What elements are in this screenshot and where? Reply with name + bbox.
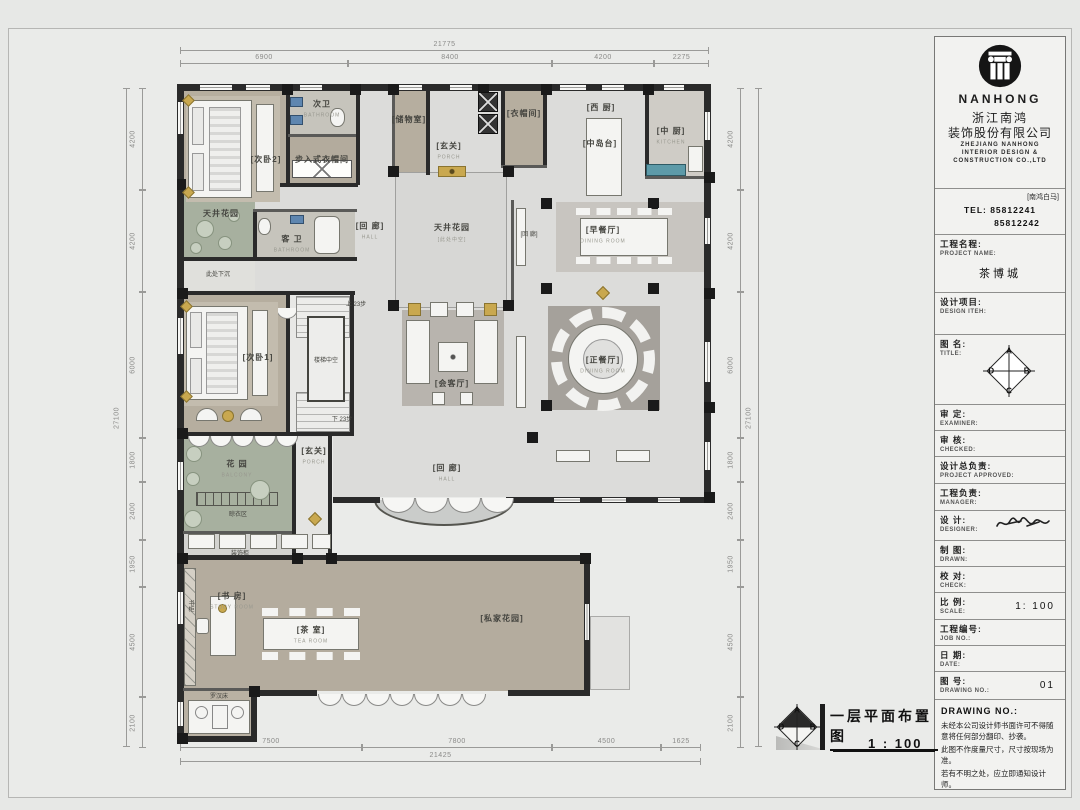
dimension-1950: 1950 bbox=[740, 540, 741, 587]
e-shape: EXAMINER: bbox=[940, 421, 1060, 427]
w-shape bbox=[253, 209, 257, 260]
winh-shape bbox=[398, 85, 422, 90]
w-shape bbox=[183, 257, 257, 261]
blue-shape bbox=[290, 215, 304, 224]
cn-shape: 天井花园 bbox=[434, 223, 470, 232]
gold-shape bbox=[408, 303, 421, 316]
cn-shape: [茶 室] bbox=[297, 626, 326, 635]
col-shape bbox=[541, 400, 552, 411]
fw-shape bbox=[196, 618, 209, 634]
dimension-1800: 1800 bbox=[740, 438, 741, 482]
w-shape bbox=[251, 690, 257, 742]
titleblock-value: 1: 100 bbox=[1015, 601, 1055, 612]
col-shape bbox=[388, 84, 399, 95]
col-shape bbox=[704, 172, 715, 183]
span: 1800 bbox=[728, 451, 735, 469]
span: 7800 bbox=[448, 738, 466, 745]
dimension-2400: 2400 bbox=[740, 482, 741, 540]
col-shape bbox=[704, 288, 715, 299]
blue-shape bbox=[290, 115, 303, 125]
span: 27100 bbox=[114, 407, 121, 429]
titleblock-row-12: 日 期:DATE: bbox=[935, 646, 1065, 672]
winh-shape bbox=[300, 85, 322, 90]
titleblock-row-11: 工程编号:JOB NO.: bbox=[935, 620, 1065, 646]
dimension-2400: 2400 bbox=[142, 482, 143, 540]
floor-plan: [次卧2]次卫BATHROOM步入式衣帽间[储物室][玄关]PORCH[衣帽间]… bbox=[0, 0, 940, 810]
dimension-2275: 2275 bbox=[654, 63, 709, 64]
cn-shape: [中 厨] bbox=[657, 127, 686, 136]
company-en-line3: CONSTRUCTION CO.,LTD bbox=[935, 158, 1065, 164]
room-label-private-garden: [私家花园] bbox=[480, 608, 523, 626]
cn-shape: 晾衣区 bbox=[229, 512, 247, 518]
bed-bedroom1 bbox=[186, 306, 248, 400]
span: 6000 bbox=[130, 356, 137, 374]
en-shape: HALL bbox=[433, 477, 462, 483]
room-label-hall-bottom: [回 廊]HALL bbox=[433, 458, 462, 483]
span: 2100 bbox=[728, 714, 735, 732]
c-shape: 日 期: bbox=[940, 649, 1060, 661]
compass-letter-B: B bbox=[810, 723, 816, 732]
wt-shape bbox=[511, 200, 514, 305]
col-shape bbox=[177, 428, 188, 439]
dimension-2100: 2100 bbox=[740, 697, 741, 748]
compass-letter-C: C bbox=[794, 740, 800, 749]
span: 21775 bbox=[434, 41, 456, 48]
dimension-27100: 27100 bbox=[758, 88, 759, 747]
room-label-bedroom1: [次卧1] bbox=[243, 347, 274, 365]
winh-shape bbox=[602, 498, 626, 502]
wt-shape bbox=[253, 209, 357, 212]
cn-shape: 步入式衣帽间 bbox=[295, 155, 349, 164]
col-shape bbox=[326, 553, 337, 564]
titleblock-value: 茶博城 bbox=[935, 265, 1065, 281]
room-label-sunken: 此处下沉 bbox=[206, 263, 230, 281]
col-shape bbox=[350, 84, 361, 95]
room-label-hall-left: [回 廊]HALL bbox=[356, 216, 385, 241]
fan-shape bbox=[318, 694, 342, 706]
span: 21425 bbox=[430, 752, 452, 759]
room-label-bath2: 次卫BATHROOM bbox=[304, 94, 341, 119]
fw-shape bbox=[516, 336, 526, 408]
room-label-stair-down: 下 23步 bbox=[332, 408, 352, 426]
room-label-stair-void: 楼梯中空 bbox=[314, 349, 338, 367]
plant-shape bbox=[196, 220, 214, 238]
titleblock-row-6: 工程负责:MANAGER: bbox=[935, 484, 1065, 511]
cn-shape: [私家花园] bbox=[480, 614, 523, 623]
dimension-27100: 27100 bbox=[126, 88, 127, 747]
gold-shape bbox=[222, 410, 234, 422]
w-shape bbox=[183, 291, 355, 295]
e-shape: DESIGN ITEH: bbox=[940, 309, 1060, 315]
e-shape: CHECKED: bbox=[940, 447, 1060, 453]
titleblock-value: 01 bbox=[1040, 680, 1055, 691]
room-label-cloakroom: [衣帽间] bbox=[507, 103, 541, 121]
pl-shape bbox=[192, 153, 204, 191]
compass-letter-D: D bbox=[988, 367, 994, 376]
cn-shape: 此处下沉 bbox=[206, 272, 230, 278]
title-block-header: NANHONG 浙江南鸿 装饰股份有限公司 ZHEJIANG NANHONG I… bbox=[935, 37, 1065, 189]
room-label-decor-cabinet: 装饰柜 bbox=[231, 542, 249, 560]
gold-shape bbox=[484, 303, 497, 316]
cn-shape: 花 园 bbox=[226, 460, 247, 469]
w-shape bbox=[183, 555, 333, 560]
winv-shape bbox=[705, 112, 710, 140]
tel-line-1: TEL: 85812241 bbox=[935, 205, 1065, 215]
w-shape bbox=[255, 690, 317, 696]
span: 2400 bbox=[130, 502, 137, 520]
en-shape: HALL bbox=[356, 235, 385, 241]
titleblock-row-5: 设计总负责:PROJECT APPROVED: bbox=[935, 457, 1065, 484]
fl-shape bbox=[333, 437, 705, 497]
cn-shape: [书 房] bbox=[218, 592, 247, 601]
fan-shape bbox=[462, 694, 486, 706]
winv-shape bbox=[178, 318, 183, 354]
winv-shape bbox=[705, 442, 710, 470]
dimension-4200: 4200 bbox=[740, 88, 741, 190]
title-block-rows: 工程名程:PROJECT NAME:茶博城设计项目:DESIGN ITEH:图 … bbox=[935, 235, 1065, 700]
circle bbox=[1006, 56, 1012, 62]
winh-shape bbox=[658, 498, 680, 502]
note-line: 未经本公司设计师书面许可不得随意将任何部分翻印、抄袭。 bbox=[941, 720, 1059, 742]
compass-letter-B: B bbox=[1024, 367, 1030, 376]
span: 1800 bbox=[130, 451, 137, 469]
titleblock-row-1: 设计项目:DESIGN ITEH: bbox=[935, 293, 1065, 335]
col-shape bbox=[648, 400, 659, 411]
fan-shape bbox=[438, 694, 462, 706]
cn-shape: 楼梯中空 bbox=[314, 358, 338, 364]
fw-shape bbox=[314, 216, 340, 254]
pl-shape bbox=[192, 107, 204, 145]
room-label-guest-bath: 客 卫BATHROOM bbox=[274, 229, 311, 254]
w-shape bbox=[333, 555, 588, 561]
room-label-storage: [储物室] bbox=[392, 109, 426, 127]
plan-compass: ABCD bbox=[774, 704, 820, 750]
room-label-courtyard-small: 天井花园 bbox=[203, 203, 239, 221]
note-line: 若有不明之处，应立即通知设计师。 bbox=[941, 768, 1059, 790]
teal-shape bbox=[646, 164, 686, 176]
bl-shape bbox=[206, 312, 238, 394]
titleblock-row-8: 制 图:DRAWN: bbox=[935, 541, 1065, 567]
cn-shape: [玄关] bbox=[301, 447, 326, 456]
tel-line-2: 85812242 bbox=[935, 218, 1065, 228]
fw-shape bbox=[312, 534, 331, 549]
div bbox=[212, 705, 228, 729]
dimension-4500: 4500 bbox=[142, 587, 143, 697]
c-shape: 工程名程: bbox=[940, 238, 1060, 250]
en-shape: BALCONY bbox=[222, 473, 253, 479]
span: 4200 bbox=[728, 232, 735, 250]
bed-bedroom2 bbox=[188, 100, 252, 198]
span: 4200 bbox=[130, 232, 137, 250]
coffee-table bbox=[438, 342, 468, 372]
rect bbox=[997, 63, 1002, 79]
col-shape bbox=[704, 402, 715, 413]
contact-section: [南鸿白马] TEL: 85812241 85812242 bbox=[935, 189, 1065, 235]
dimension-4200: 4200 bbox=[740, 190, 741, 292]
cn-shape: [衣帽间] bbox=[507, 109, 541, 118]
col-shape bbox=[388, 166, 399, 177]
cn-shape: [正餐厅] bbox=[586, 356, 620, 365]
div: 未经本公司设计师书面许可不得随意将任何部分翻印、抄袭。此图不作度量尺寸，尺寸按现… bbox=[941, 720, 1059, 790]
titleblock-row-2: 图 名:TITLE:ABCD bbox=[935, 335, 1065, 405]
col-shape bbox=[704, 492, 715, 503]
cn-shape: 装饰柜 bbox=[231, 551, 249, 557]
span: 7500 bbox=[262, 738, 280, 745]
compass-letter-C: C bbox=[1006, 386, 1012, 395]
winv-shape bbox=[178, 102, 183, 134]
w-shape bbox=[356, 91, 360, 185]
path bbox=[997, 518, 1049, 526]
bl-shape bbox=[209, 107, 241, 191]
winv-shape bbox=[178, 702, 183, 726]
bookcase-strip bbox=[184, 568, 196, 686]
plant-shape bbox=[250, 480, 270, 500]
div bbox=[195, 706, 208, 719]
winv-shape bbox=[705, 218, 710, 244]
winv-shape bbox=[705, 342, 710, 382]
en-shape: PORCH bbox=[301, 460, 326, 466]
dimension-21775: 21775 bbox=[180, 50, 709, 51]
cn-shape: [回 廊] bbox=[433, 464, 462, 473]
daybed-bed bbox=[188, 700, 250, 734]
title-divider-bar bbox=[820, 704, 825, 750]
cn-shape: [次卧1] bbox=[243, 353, 274, 362]
fw-shape bbox=[432, 392, 445, 405]
en-shape: BATHROOM bbox=[274, 248, 311, 254]
fan-shape bbox=[342, 694, 366, 706]
w-shape bbox=[253, 257, 357, 261]
cn-shape: [储物室] bbox=[392, 115, 426, 124]
room-label-porch-top: [玄关]PORCH bbox=[436, 136, 461, 161]
c-shape: 工程负责: bbox=[940, 487, 1060, 499]
div: ABCD bbox=[983, 345, 1035, 397]
xboxd-shape bbox=[478, 114, 498, 134]
compass-icon: ABCD bbox=[774, 704, 820, 750]
note-line: 此图不作度量尺寸，尺寸按现场为准。 bbox=[941, 744, 1059, 766]
c-shape: 校 对: bbox=[940, 570, 1060, 582]
w-shape bbox=[508, 690, 590, 696]
titleblock-row-10: 比 例:SCALE:1: 100 bbox=[935, 593, 1065, 620]
plant-shape bbox=[186, 446, 202, 462]
kitchen-island bbox=[586, 118, 622, 196]
c-shape: 工程编号: bbox=[940, 623, 1060, 635]
winh-shape bbox=[450, 85, 472, 90]
c-shape: 制 图: bbox=[940, 544, 1060, 556]
plan-scale-text: 1 : 100 bbox=[868, 736, 922, 751]
col-shape bbox=[503, 300, 514, 311]
dimension-7500: 7500 bbox=[180, 747, 362, 748]
span: 4500 bbox=[130, 633, 137, 651]
div bbox=[183, 558, 584, 691]
e-shape: PROJECT APPROVED: bbox=[940, 473, 1060, 479]
cn-shape: [玄关] bbox=[436, 142, 461, 151]
company-cn-line2: 装饰股份有限公司 bbox=[935, 124, 1065, 141]
plant-shape bbox=[218, 236, 232, 250]
en-shape: PORCH bbox=[436, 155, 461, 161]
titleblock-row-13: 图 号:DRAWING NO.:01 bbox=[935, 672, 1065, 700]
en-shape: TEA ROOM bbox=[294, 639, 328, 645]
wt-shape bbox=[288, 134, 356, 137]
w-shape bbox=[183, 736, 257, 742]
cn-shape: 罗汉床 bbox=[210, 694, 228, 700]
span: 1950 bbox=[130, 555, 137, 573]
en-shape: KITCHEN bbox=[657, 140, 686, 146]
blue-shape bbox=[290, 97, 303, 107]
room-label-garden: 花 园BALCONY bbox=[222, 454, 253, 479]
c-shape: 审 核: bbox=[940, 434, 1060, 446]
cn-shape: [次卧2] bbox=[251, 155, 282, 164]
dimension-6000: 6000 bbox=[740, 292, 741, 438]
winh-shape bbox=[246, 85, 270, 90]
nanhong-logo-icon bbox=[977, 43, 1023, 89]
cn-shape: [回 廊] bbox=[356, 222, 385, 231]
titleblock-row-3: 审 定:EXAMINER: bbox=[935, 405, 1065, 431]
dimension-4200: 4200 bbox=[142, 88, 143, 190]
cn-shape: 客 卫 bbox=[281, 235, 302, 244]
dimension-6900: 6900 bbox=[180, 63, 348, 64]
winh-shape bbox=[560, 85, 586, 90]
col-shape bbox=[541, 283, 552, 294]
dimension-4500: 4500 bbox=[740, 587, 741, 697]
wt-shape bbox=[392, 91, 395, 175]
fw-shape bbox=[688, 146, 703, 172]
dimension-21425: 21425 bbox=[180, 761, 701, 762]
room-label-courtyard: 天井花园[此处中空] bbox=[434, 217, 470, 243]
col-shape bbox=[388, 300, 399, 311]
room-label-dining-room: [正餐厅]DINING ROOM bbox=[580, 350, 625, 375]
room-label-bedroom2: [次卧2] bbox=[251, 149, 282, 167]
company-en-line2: INTERIOR DESIGN & bbox=[935, 150, 1065, 156]
e-shape: JOB NO.: bbox=[940, 636, 1060, 642]
winh-shape bbox=[664, 85, 684, 90]
cn-shape: 上 23步 bbox=[346, 302, 366, 308]
wt-shape bbox=[645, 176, 709, 179]
w-shape bbox=[333, 497, 380, 503]
cn-shape: [西 厨] bbox=[587, 103, 616, 112]
span: 27100 bbox=[746, 407, 753, 429]
e-shape: PROJECT NAME: bbox=[940, 251, 1060, 257]
span: 4200 bbox=[728, 130, 735, 148]
titleblock-row-7: 设 计:DESIGNER: bbox=[935, 511, 1065, 541]
cn-shape: 下 23步 bbox=[332, 417, 352, 423]
e-shape: MANAGER: bbox=[940, 500, 1060, 506]
col-shape bbox=[282, 84, 293, 95]
room-label-bookcase: 书柜 bbox=[181, 600, 199, 612]
fan-shape bbox=[366, 694, 390, 706]
span: 2400 bbox=[728, 502, 735, 520]
div bbox=[392, 91, 428, 175]
titleblock-row-0: 工程名程:PROJECT NAME:茶博城 bbox=[935, 235, 1065, 293]
dimension-4500: 4500 bbox=[552, 747, 661, 748]
notes-header: DRAWING NO.: bbox=[941, 706, 1059, 716]
dimension-8400: 8400 bbox=[348, 63, 552, 64]
compass-letter-A: A bbox=[794, 705, 800, 714]
c-shape: 设计项目: bbox=[940, 296, 1060, 308]
col-shape bbox=[527, 432, 538, 443]
plant-shape bbox=[184, 510, 202, 528]
en-shape: [此处中空] bbox=[434, 236, 470, 243]
e-shape: DATE: bbox=[940, 662, 1060, 668]
plan-title-block: ABCD 一层平面布置图 1 : 100 bbox=[768, 702, 938, 764]
titleblock-row-9: 校 对:CHECK: bbox=[935, 567, 1065, 593]
col-shape bbox=[541, 84, 552, 95]
room-label-kitchen: [中 厨]KITCHEN bbox=[657, 121, 686, 146]
fw-shape bbox=[188, 534, 215, 549]
titleblock-row-4: 审 核:CHECKED: bbox=[935, 431, 1065, 457]
w-shape bbox=[543, 91, 547, 168]
en-shape: DINING ROOM bbox=[580, 369, 625, 375]
span: 4200 bbox=[594, 54, 612, 61]
dimension-1625: 1625 bbox=[661, 747, 701, 748]
cn-shape: [早餐厅] bbox=[586, 226, 620, 235]
room-label-daybed: 罗汉床 bbox=[210, 685, 228, 703]
span: 8400 bbox=[441, 54, 459, 61]
branch-label: [南鸿白马] bbox=[1027, 192, 1059, 202]
dimension-6000: 6000 bbox=[142, 292, 143, 438]
compass-letter-A: A bbox=[1006, 347, 1012, 356]
w-shape bbox=[501, 91, 505, 168]
plant-shape bbox=[190, 242, 202, 254]
compass-icon: ABCD bbox=[983, 345, 1035, 397]
room-label-west-kitchen: [西 厨] bbox=[587, 97, 616, 115]
fan-shape bbox=[414, 694, 438, 706]
sofa-right bbox=[474, 320, 498, 384]
rect bbox=[990, 63, 995, 79]
dimension-2100: 2100 bbox=[142, 697, 143, 748]
col-shape bbox=[643, 84, 654, 95]
room-label-hall-right: [回 廊] bbox=[520, 223, 537, 241]
dimension-7800: 7800 bbox=[362, 747, 552, 748]
dimension-4200: 4200 bbox=[552, 63, 654, 64]
room-label-tea-room: [茶 室]TEA ROOM bbox=[294, 620, 328, 645]
sofa-left bbox=[406, 320, 430, 384]
winh-shape bbox=[200, 85, 232, 90]
room-label-porch-bottom: [玄关]PORCH bbox=[301, 441, 326, 466]
xboxd-shape bbox=[478, 92, 498, 112]
fw-shape bbox=[250, 534, 277, 549]
room-label-stair-up: 上 23步 bbox=[346, 293, 366, 311]
circle bbox=[988, 56, 994, 62]
courtyard-ornament bbox=[438, 166, 466, 177]
pl-shape bbox=[190, 312, 202, 348]
col-shape bbox=[177, 553, 188, 564]
room-label-walkin-closet: 步入式衣帽间 bbox=[295, 149, 349, 167]
designer-signature bbox=[993, 513, 1053, 535]
fan-shape bbox=[390, 694, 414, 706]
col-shape bbox=[292, 553, 303, 564]
col-shape bbox=[177, 733, 188, 744]
span: 2275 bbox=[673, 54, 691, 61]
brand-name: NANHONG bbox=[935, 92, 1065, 106]
pl-shape bbox=[190, 358, 202, 394]
cn-shape: 书柜 bbox=[187, 600, 193, 612]
room-label-drying-area: 晾衣区 bbox=[229, 503, 247, 521]
e-shape: DRAWN: bbox=[940, 557, 1060, 563]
rect bbox=[989, 52, 1012, 56]
room-label-living-room: [会客厅] bbox=[435, 373, 469, 391]
en-shape: STUDY ROOM bbox=[210, 605, 254, 611]
e-shape: CHECK: bbox=[940, 583, 1060, 589]
company-en-line1: ZHEJIANG NANHONG bbox=[935, 142, 1065, 148]
fw-shape bbox=[258, 218, 271, 235]
winh-shape bbox=[602, 85, 624, 90]
cn-shape: [会客厅] bbox=[435, 379, 469, 388]
cn-shape: 天井花园 bbox=[203, 209, 239, 218]
fw-shape bbox=[456, 302, 474, 317]
dimension-4200: 4200 bbox=[142, 190, 143, 292]
col-shape bbox=[177, 288, 188, 299]
plant-shape bbox=[186, 472, 200, 486]
